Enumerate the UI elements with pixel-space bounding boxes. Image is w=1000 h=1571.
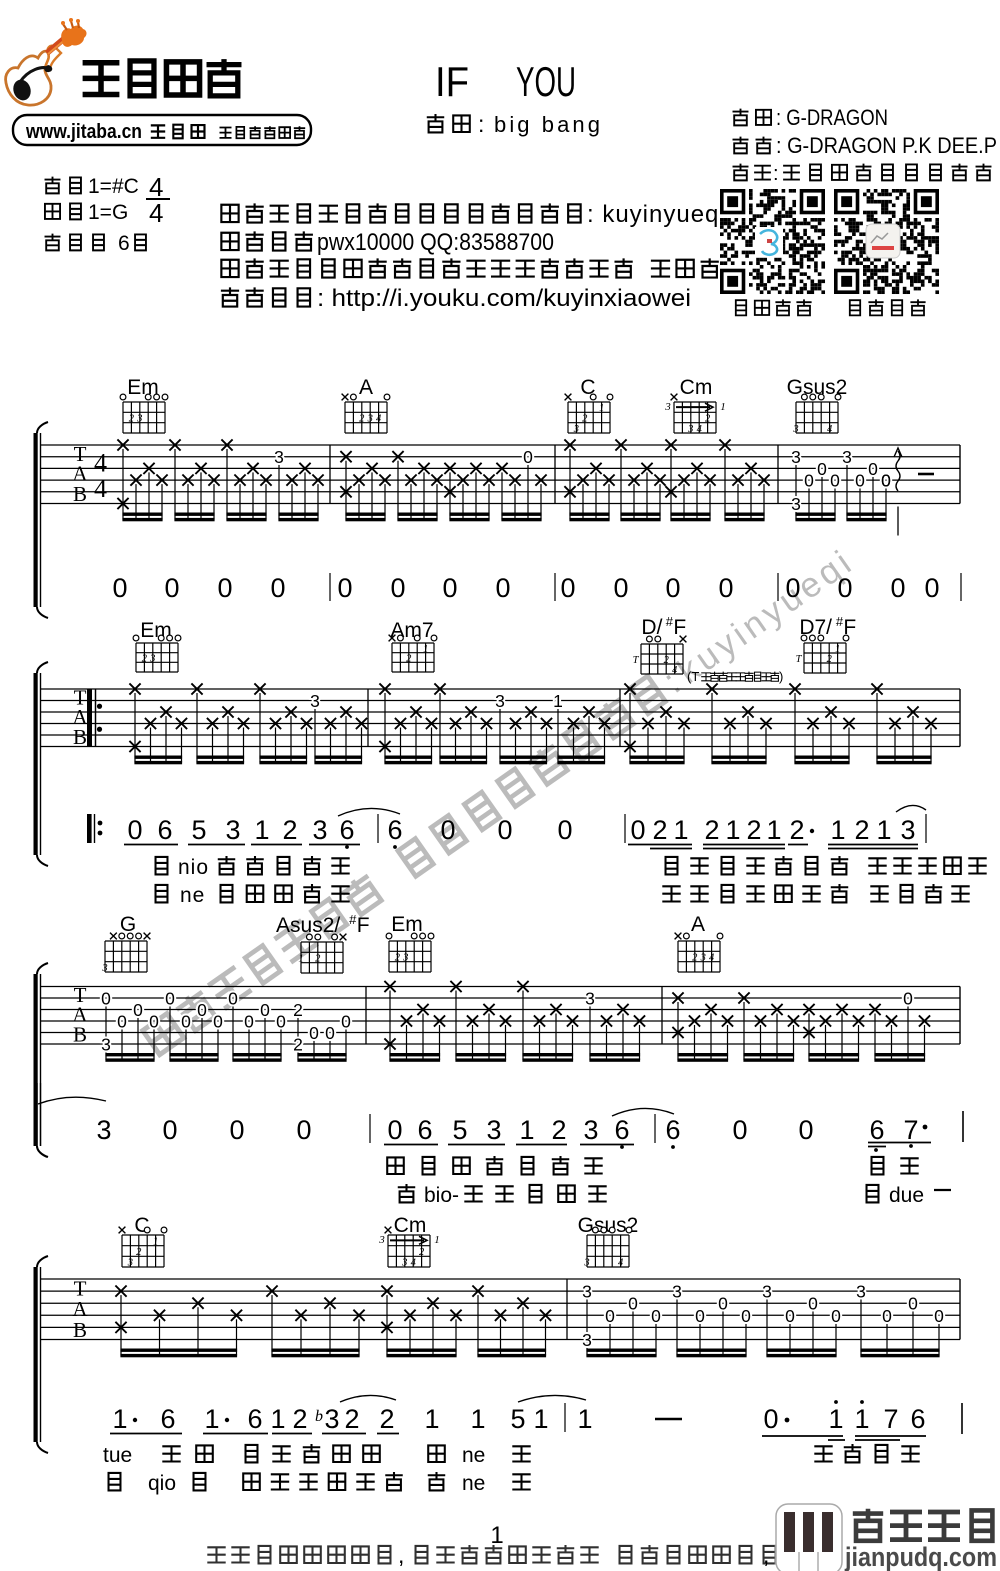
svg-text:Em: Em — [391, 913, 423, 936]
svg-text:0: 0 — [440, 815, 455, 845]
svg-text:2: 2 — [379, 1404, 394, 1434]
svg-text:Cm: Cm — [680, 376, 713, 399]
svg-text:0: 0 — [309, 1023, 319, 1043]
svg-text:5: 5 — [191, 815, 206, 845]
svg-text:0: 0 — [763, 1404, 778, 1434]
svg-text::: : — [478, 111, 484, 137]
svg-text:3: 3 — [101, 963, 107, 974]
svg-text:3: 3 — [136, 414, 142, 425]
svg-text:2: 2 — [652, 815, 667, 845]
svg-text:7: 7 — [903, 1115, 918, 1145]
svg-text:0: 0 — [804, 471, 814, 491]
svg-text:1=G: 1=G — [88, 201, 128, 224]
svg-text:0: 0 — [337, 573, 352, 603]
svg-text:0: 0 — [808, 1294, 818, 1314]
svg-text:3: 3 — [700, 953, 706, 964]
svg-text:2: 2 — [406, 654, 412, 665]
svg-text:4: 4 — [709, 953, 715, 964]
svg-text:1: 1 — [519, 1115, 534, 1145]
svg-text:2: 2 — [395, 953, 401, 964]
svg-text:6: 6 — [247, 1404, 262, 1434]
svg-text:(T: (T — [687, 669, 699, 684]
svg-text:1: 1 — [470, 1404, 485, 1434]
svg-text:2: 2 — [142, 654, 148, 665]
svg-text:0: 0 — [149, 1012, 159, 1032]
svg-text:0: 0 — [270, 573, 285, 603]
svg-text:1: 1 — [835, 644, 840, 655]
svg-text:2: 2 — [293, 1000, 303, 1020]
svg-text:B: B — [73, 1023, 87, 1047]
svg-text:2: 2 — [746, 815, 761, 845]
svg-text:4: 4 — [94, 474, 107, 503]
svg-text:6: 6 — [160, 1404, 175, 1434]
svg-text:Cm: Cm — [394, 1214, 427, 1237]
svg-text:3: 3 — [762, 1282, 772, 1302]
svg-text:1: 1 — [423, 644, 428, 655]
svg-text:0: 0 — [217, 573, 232, 603]
svg-text:B: B — [73, 482, 87, 506]
svg-text:B: B — [73, 1318, 87, 1342]
svg-text:1: 1 — [112, 1404, 127, 1434]
svg-text:Gsus2: Gsus2 — [578, 1214, 639, 1237]
svg-text:1: 1 — [766, 815, 781, 845]
svg-text:0: 0 — [560, 573, 575, 603]
svg-text:A: A — [691, 913, 705, 936]
svg-text:pwx10000 QQ:83588700: pwx10000 QQ:83588700 — [317, 229, 554, 256]
svg-text:: kuyinyueqi: : kuyinyueqi — [587, 201, 726, 228]
svg-text:4: 4 — [672, 665, 678, 676]
svg-text:0: 0 — [651, 1306, 661, 1326]
svg-text:1: 1 — [490, 1522, 503, 1549]
svg-text:4: 4 — [94, 448, 107, 477]
svg-text:0: 0 — [325, 1023, 335, 1043]
svg-text:3: 3 — [585, 989, 595, 1009]
svg-text:0: 0 — [197, 1000, 207, 1020]
svg-text:0: 0 — [741, 1306, 751, 1326]
svg-text:7: 7 — [883, 1404, 898, 1434]
svg-text:3: 3 — [495, 691, 505, 711]
svg-text:3: 3 — [583, 1258, 589, 1269]
svg-text:5: 5 — [510, 1404, 525, 1434]
svg-text:6: 6 — [339, 815, 354, 845]
svg-text:D/: D/ — [641, 616, 662, 639]
svg-text:6: 6 — [869, 1115, 884, 1145]
svg-text:1: 1 — [725, 815, 740, 845]
svg-text:3: 3 — [792, 424, 798, 435]
svg-text:IF: IF — [435, 58, 469, 105]
svg-text:0: 0 — [882, 1306, 892, 1326]
svg-text:YOU: YOU — [516, 58, 576, 105]
svg-text:www.jitaba.cn: www.jitaba.cn — [25, 121, 142, 143]
svg-text:,: , — [398, 1542, 404, 1568]
svg-text:2: 2 — [129, 414, 135, 425]
svg-text:nio: nio — [178, 856, 209, 879]
svg-text:0: 0 — [296, 1115, 311, 1145]
svg-text:0: 0 — [390, 573, 405, 603]
svg-text:0: 0 — [695, 1306, 705, 1326]
svg-text:3: 3 — [101, 1035, 111, 1055]
svg-text:0: 0 — [924, 573, 939, 603]
svg-text:b: b — [315, 1408, 323, 1425]
svg-text:0: 0 — [613, 573, 628, 603]
svg-text:tue: tue — [103, 1444, 132, 1467]
svg-text:3: 3 — [672, 1282, 682, 1302]
svg-text:0: 0 — [442, 573, 457, 603]
svg-text:1=#C: 1=#C — [88, 175, 139, 198]
svg-text:4: 4 — [697, 424, 703, 435]
svg-text:2: 2 — [827, 654, 833, 665]
svg-text:0: 0 — [831, 1306, 841, 1326]
svg-text:ne: ne — [462, 1472, 485, 1495]
svg-text:4: 4 — [411, 1258, 417, 1269]
svg-text:2: 2 — [854, 815, 869, 845]
svg-text:6: 6 — [910, 1404, 925, 1434]
svg-text:0: 0 — [244, 1012, 254, 1032]
svg-text:4: 4 — [827, 424, 833, 435]
svg-text:0: 0 — [112, 573, 127, 603]
svg-text:1: 1 — [424, 1404, 439, 1434]
svg-text:0: 0 — [229, 1115, 244, 1145]
svg-text:2: 2 — [704, 815, 719, 845]
svg-text:0: 0 — [495, 573, 510, 603]
svg-text:1: 1 — [254, 815, 269, 845]
svg-text:0: 0 — [785, 573, 800, 603]
svg-text:0: 0 — [127, 815, 142, 845]
svg-text:0: 0 — [934, 1306, 944, 1326]
svg-text:0: 0 — [101, 989, 111, 1009]
svg-text:Am7: Am7 — [390, 619, 433, 642]
svg-text:0: 0 — [628, 1294, 638, 1314]
svg-text:0: 0 — [165, 989, 175, 1009]
svg-text:0: 0 — [497, 815, 512, 845]
svg-text:B: B — [73, 725, 87, 749]
svg-text:6: 6 — [614, 1115, 629, 1145]
svg-text:0: 0 — [605, 1306, 615, 1326]
svg-text:0: 0 — [341, 1012, 351, 1032]
svg-text:3: 3 — [402, 953, 408, 964]
svg-text:3: 3 — [225, 815, 240, 845]
svg-text:2: 2 — [789, 815, 804, 845]
svg-text:1: 1 — [553, 691, 563, 711]
svg-text:0: 0 — [718, 573, 733, 603]
svg-text:3: 3 — [856, 1282, 866, 1302]
svg-text:0: 0 — [387, 1115, 402, 1145]
svg-text:0: 0 — [276, 1012, 286, 1032]
svg-text:3: 3 — [127, 1258, 133, 1269]
svg-text:6: 6 — [387, 815, 402, 845]
svg-text:3: 3 — [583, 1115, 598, 1145]
svg-text:3: 3 — [486, 1115, 501, 1145]
svg-text:: G-DRAGON P.K DEE.P: : G-DRAGON P.K DEE.P — [776, 133, 997, 158]
svg-text:C: C — [134, 1214, 149, 1237]
svg-text:0: 0 — [665, 573, 680, 603]
svg-text:1: 1 — [876, 815, 891, 845]
svg-text:1: 1 — [298, 954, 303, 965]
svg-text:0: 0 — [903, 989, 913, 1009]
svg-text:big bang: big bang — [494, 112, 600, 137]
svg-text:3: 3 — [401, 1258, 407, 1269]
svg-text:A: A — [359, 376, 373, 399]
svg-text::: : — [773, 163, 779, 185]
svg-text:6: 6 — [665, 1115, 680, 1145]
svg-text:6: 6 — [157, 815, 172, 845]
svg-text:0: 0 — [890, 573, 905, 603]
svg-text:4: 4 — [618, 1258, 624, 1269]
svg-text:0: 0 — [798, 1115, 813, 1145]
svg-text:3: 3 — [687, 424, 693, 435]
svg-text:2: 2 — [315, 954, 321, 965]
svg-text:1: 1 — [533, 1404, 548, 1434]
svg-text:2: 2 — [136, 1247, 142, 1258]
svg-text:1: 1 — [854, 1404, 869, 1434]
svg-text:3: 3 — [367, 414, 373, 425]
svg-text:3: 3 — [378, 1234, 385, 1246]
svg-text:3: 3 — [324, 1404, 339, 1434]
svg-text:: G-DRAGON: : G-DRAGON — [776, 105, 888, 130]
svg-text:1: 1 — [153, 1236, 158, 1247]
svg-text:0: 0 — [162, 1115, 177, 1145]
svg-text:3: 3 — [310, 691, 320, 711]
svg-text:jianpudq.com: jianpudq.com — [844, 1542, 997, 1571]
svg-text:4: 4 — [376, 414, 382, 425]
svg-text:Asus2/: Asus2/ — [276, 914, 340, 937]
svg-text:0: 0 — [881, 471, 891, 491]
svg-text:0: 0 — [868, 459, 878, 479]
svg-text:2: 2 — [692, 953, 698, 964]
svg-text:3: 3 — [791, 494, 801, 514]
svg-text:): ) — [779, 669, 783, 684]
svg-text:0: 0 — [164, 573, 179, 603]
svg-text:0: 0 — [260, 1000, 270, 1020]
svg-text:2: 2 — [292, 1404, 307, 1434]
svg-text:1: 1 — [577, 1404, 592, 1434]
svg-text:2: 2 — [705, 414, 711, 425]
svg-text:1: 1 — [434, 1234, 440, 1246]
svg-text:0: 0 — [630, 815, 645, 845]
svg-text:1: 1 — [673, 815, 688, 845]
svg-text:: http://i.youku.com/kuyinxiao: : http://i.youku.com/kuyinxiaowei — [317, 285, 691, 312]
svg-text:0: 0 — [133, 1000, 143, 1020]
svg-text:0: 0 — [732, 1115, 747, 1145]
svg-text:1: 1 — [599, 403, 604, 414]
svg-text:2: 2 — [344, 1404, 359, 1434]
svg-text:0: 0 — [855, 471, 865, 491]
svg-text:3: 3 — [664, 401, 671, 413]
svg-text:2: 2 — [551, 1115, 566, 1145]
svg-text:0: 0 — [908, 1294, 918, 1314]
svg-text:0: 0 — [817, 459, 827, 479]
svg-text:5: 5 — [452, 1115, 467, 1145]
svg-text:2: 2 — [282, 815, 297, 845]
svg-text:0: 0 — [523, 447, 533, 467]
svg-text:4: 4 — [149, 198, 163, 228]
svg-text:1: 1 — [830, 815, 845, 845]
svg-text:3: 3 — [573, 424, 579, 435]
svg-text:ne: ne — [180, 884, 205, 907]
svg-text:2: 2 — [664, 655, 670, 666]
svg-text:1: 1 — [270, 1404, 285, 1434]
svg-text:1: 1 — [720, 401, 726, 413]
svg-text:3: 3 — [149, 654, 155, 665]
svg-text:F: F — [357, 914, 370, 937]
svg-text:0: 0 — [213, 1012, 223, 1032]
svg-text:3: 3 — [312, 815, 327, 845]
svg-text:0: 0 — [785, 1306, 795, 1326]
svg-text:0: 0 — [117, 1012, 127, 1032]
svg-text:ne: ne — [462, 1444, 485, 1467]
svg-text:0: 0 — [228, 989, 238, 1009]
svg-text:,: , — [763, 1542, 769, 1568]
svg-text:qio: qio — [148, 1472, 176, 1495]
svg-text:0: 0 — [837, 573, 852, 603]
svg-text:0: 0 — [830, 471, 840, 491]
svg-text:due: due — [889, 1184, 924, 1207]
svg-text:2: 2 — [359, 414, 365, 425]
svg-text:6: 6 — [417, 1115, 432, 1145]
svg-text:0: 0 — [557, 815, 572, 845]
svg-text:3: 3 — [582, 1330, 592, 1350]
svg-text:6: 6 — [118, 232, 130, 255]
svg-text:3: 3 — [274, 447, 284, 467]
svg-text:3: 3 — [791, 447, 801, 467]
svg-text:2: 2 — [419, 1247, 425, 1258]
svg-text:2: 2 — [293, 1035, 303, 1055]
svg-text:3: 3 — [900, 815, 915, 845]
svg-text:bio-: bio- — [424, 1184, 459, 1207]
svg-text:0: 0 — [718, 1294, 728, 1314]
svg-text:3: 3 — [582, 1282, 592, 1302]
svg-text:0: 0 — [181, 1012, 191, 1032]
svg-text:3: 3 — [842, 447, 852, 467]
svg-text:3: 3 — [96, 1115, 111, 1145]
svg-text:1: 1 — [828, 1404, 843, 1434]
svg-text:1: 1 — [204, 1404, 219, 1434]
svg-text:2: 2 — [582, 414, 588, 425]
